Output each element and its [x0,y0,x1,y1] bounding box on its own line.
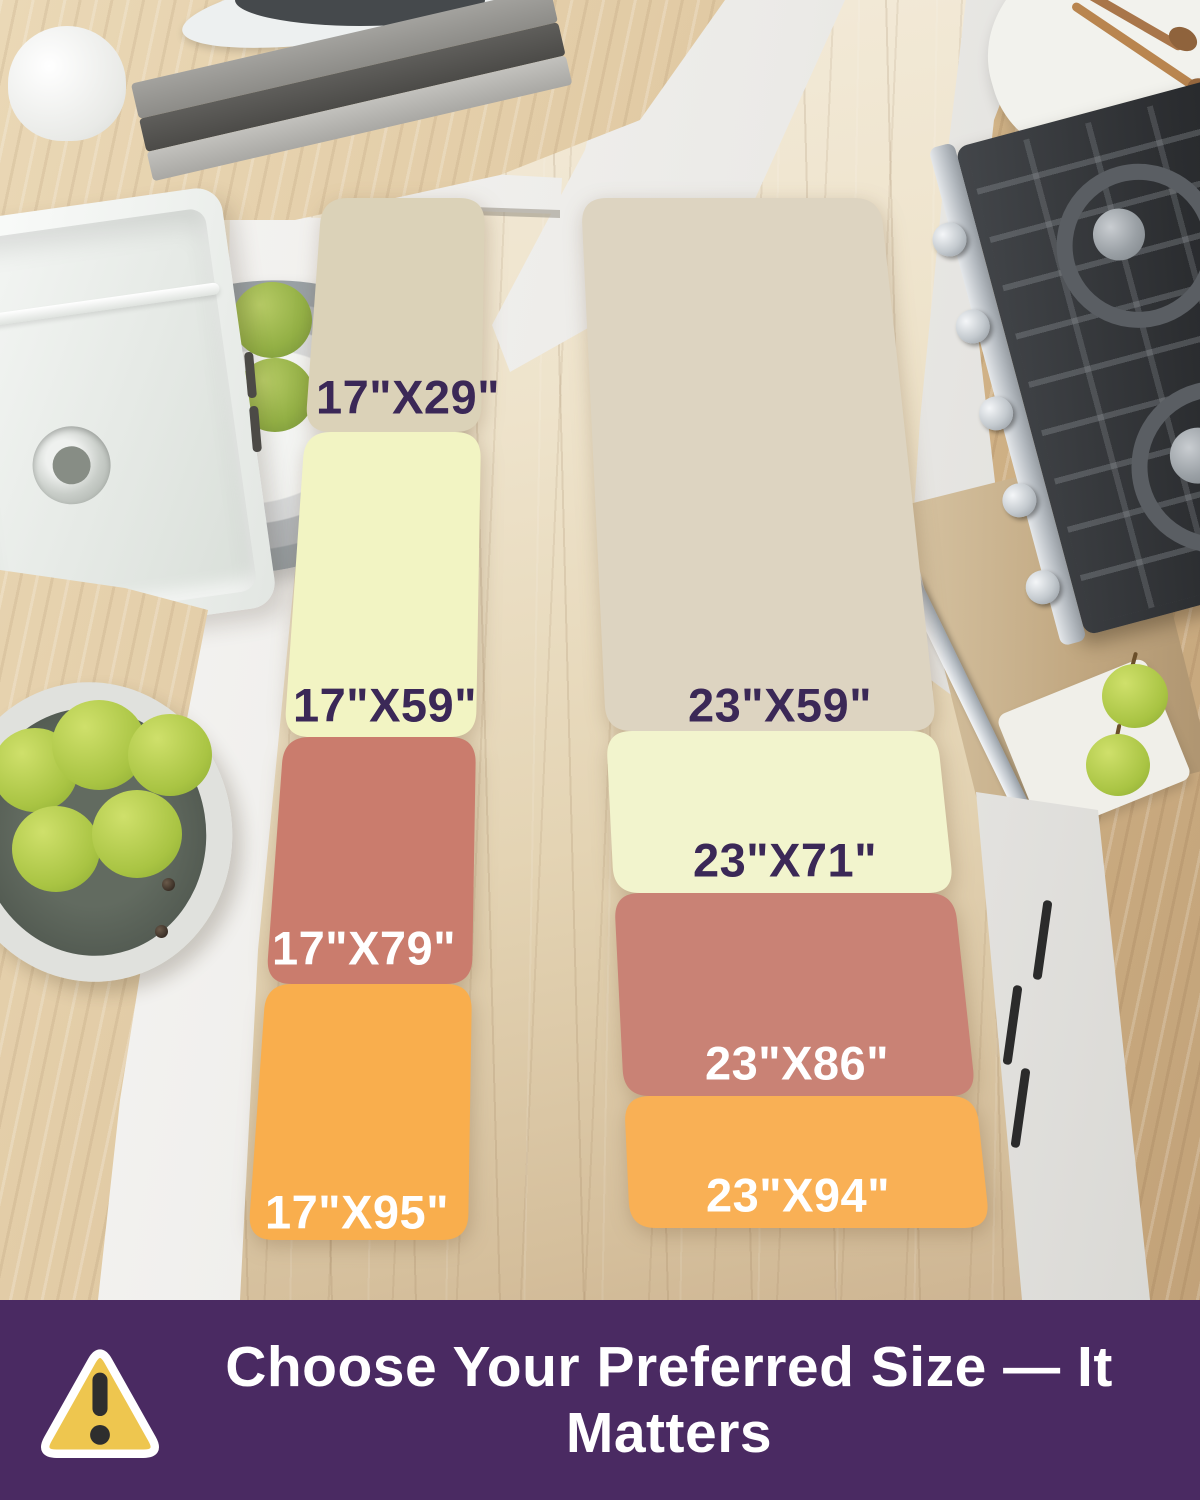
size-label-17x79: 17"X79" [272,921,456,976]
banner-text: Choose Your Preferred Size — It Matters [166,1334,1200,1466]
runner-segment-23x59 [582,198,934,731]
exclamation-bar [92,1373,107,1416]
size-label-23x71: 23"X71" [693,833,877,888]
size-warning-banner: Choose Your Preferred Size — It Matters [0,1300,1200,1500]
exclamation-dot [90,1425,110,1445]
rug-size-guide: 17"X29" 17"X59" 17"X79" 17"X95" 23"X59" … [0,0,1200,1500]
size-label-17x59: 17"X59" [293,678,477,733]
warning-triangle-icon [34,1339,166,1461]
size-label-17x95: 17"X95" [265,1185,449,1240]
size-label-23x94: 23"X94" [706,1168,890,1223]
size-label-23x59: 23"X59" [688,678,872,733]
size-label-17x29: 17"X29" [316,370,500,425]
size-label-23x86: 23"X86" [705,1036,889,1091]
runner-overlays [0,0,1200,1500]
